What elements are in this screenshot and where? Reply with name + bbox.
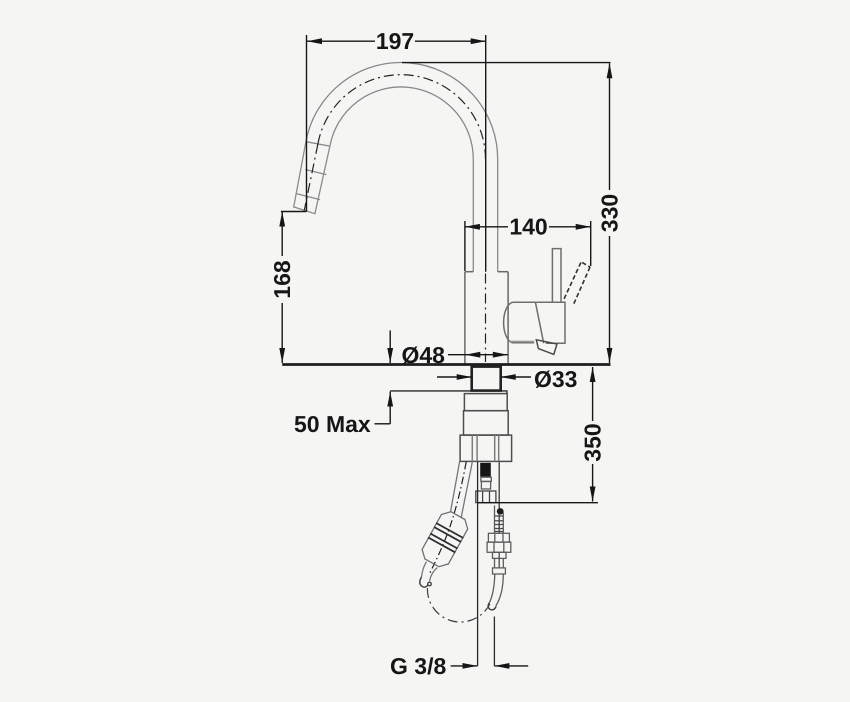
svg-text:Ø48: Ø48: [402, 342, 446, 368]
svg-text:G 3/8: G 3/8: [390, 653, 446, 679]
svg-text:Ø33: Ø33: [534, 366, 577, 392]
svg-text:140: 140: [509, 214, 547, 240]
svg-text:197: 197: [376, 28, 414, 54]
svg-text:350: 350: [580, 423, 606, 461]
svg-text:168: 168: [269, 260, 295, 299]
svg-text:50 Max: 50 Max: [294, 411, 371, 437]
svg-text:330: 330: [597, 194, 623, 232]
